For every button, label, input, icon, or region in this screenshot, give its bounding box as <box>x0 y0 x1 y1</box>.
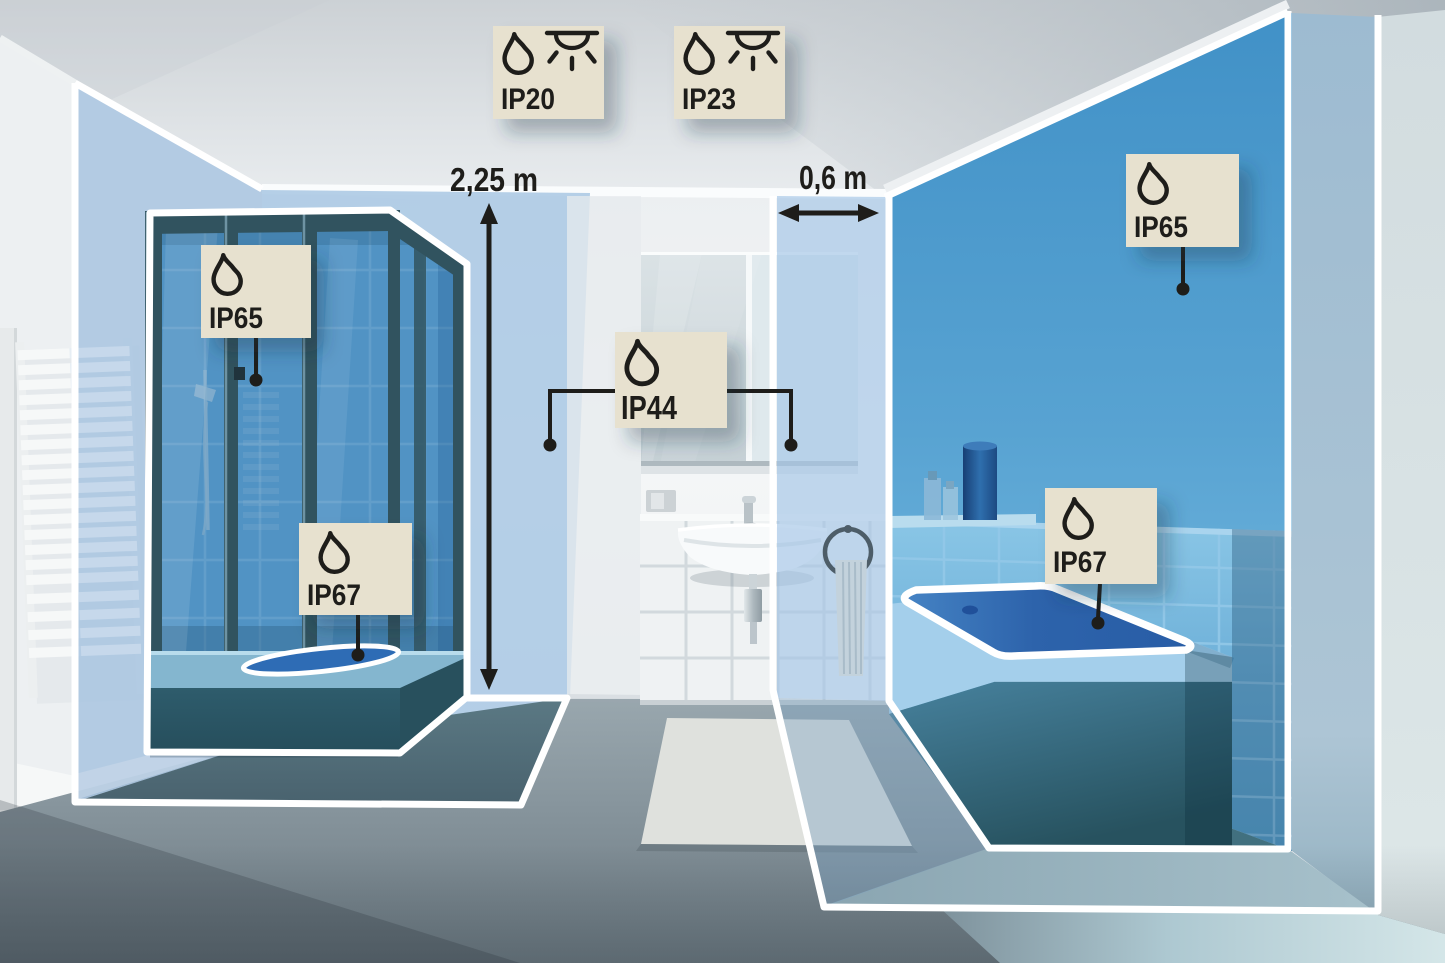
svg-text:2,25 m: 2,25 m <box>450 161 538 198</box>
svg-text:IP67: IP67 <box>307 579 361 612</box>
svg-text:IP65: IP65 <box>209 302 263 335</box>
svg-text:IP67: IP67 <box>1053 546 1107 579</box>
svg-text:0,6 m: 0,6 m <box>799 159 867 196</box>
svg-text:IP20: IP20 <box>501 83 555 116</box>
svg-text:IP23: IP23 <box>682 83 736 116</box>
svg-text:IP65: IP65 <box>1134 211 1188 244</box>
svg-text:IP44: IP44 <box>621 389 678 426</box>
